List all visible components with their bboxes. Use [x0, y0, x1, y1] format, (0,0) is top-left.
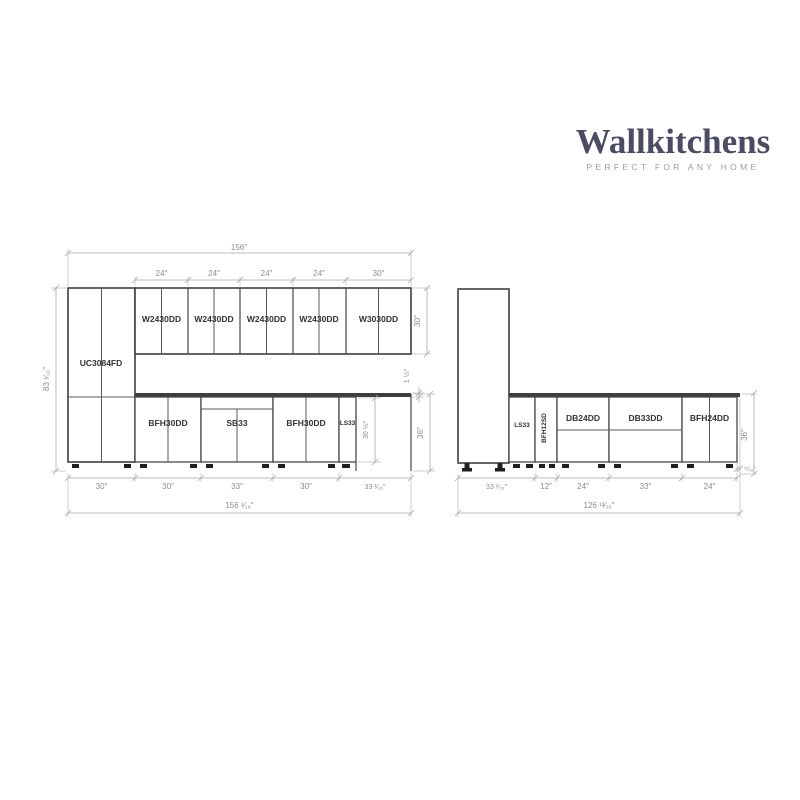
dim-base-height: 30 ½″	[362, 420, 370, 439]
dim-base-width: 33″	[640, 482, 652, 491]
right-elevation: LS33 BFH12SD DB24DD DB33DD BFH24DD 33 ¹⁄…	[455, 289, 757, 517]
tall-cabinet-legs	[462, 463, 505, 472]
label-base-cabinet: DB24DD	[566, 413, 600, 423]
dim-wall-width: 24″	[208, 269, 220, 278]
dim-base-width: 24″	[577, 482, 589, 491]
dim-wall-width: 30″	[373, 269, 385, 278]
label-wall-cabinet: W2430DD	[299, 314, 338, 324]
brand-logo: Wallkitchens PERFECT FOR ANY HOME	[568, 124, 778, 172]
label-base-cabinet: LS33	[340, 420, 356, 427]
dim-counter-height: 36″	[740, 429, 749, 441]
dim-base-width: 33 ¹⁄₁₆″	[486, 484, 507, 491]
cabinet-feet-left	[72, 464, 350, 468]
dim-counter-height: 36″	[416, 427, 425, 439]
label-base-cabinet: SB33	[226, 418, 248, 428]
dim-countertop-thickness: 1 ½″	[403, 368, 411, 383]
dim-wall-width: 24″	[261, 269, 273, 278]
brand-tagline: PERFECT FOR ANY HOME	[568, 162, 778, 172]
dim-wall-height: 30″	[413, 315, 422, 327]
dim-base-width: 30″	[96, 482, 108, 491]
dim-total-height: 83 ¹⁄₁₆″	[42, 367, 51, 391]
label-base-cabinet: BFH12SD	[541, 413, 548, 443]
label-base-cabinet: BFH30DD	[286, 418, 325, 428]
label-wall-cabinet: W2430DD	[142, 314, 181, 324]
left-elevation: UC3084FD W2430DD W2430DD W2430DD W2430DD…	[42, 243, 435, 517]
label-base-cabinet: BFH24DD	[690, 413, 729, 423]
dim-base-width: 12″	[540, 482, 552, 491]
label-wall-cabinet: W3030DD	[359, 314, 398, 324]
dim-wall-width: 24″	[156, 269, 168, 278]
dim-wall-width: 24″	[313, 269, 325, 278]
dim-base-width: 24″	[704, 482, 716, 491]
dim-base-width: 33″	[231, 482, 243, 491]
dim-base-width: 33 ¹⁄₁₆″	[365, 484, 386, 491]
tall-cabinet-uc3084fd	[68, 288, 135, 462]
dim-overall-bottom: 126 ¹³⁄₁₆″	[584, 501, 615, 510]
label-tall-cabinet: UC3084FD	[80, 358, 123, 368]
dim-base-width: 30″	[300, 482, 312, 491]
dim-overall-top: 156″	[231, 243, 247, 252]
dim-overall-bottom: 156 ¹⁄₁₆″	[225, 501, 253, 510]
label-base-cabinet: LS33	[514, 422, 530, 429]
elevation-drawings: UC3084FD W2430DD W2430DD W2430DD W2430DD…	[0, 0, 800, 800]
label-wall-cabinet: W2430DD	[194, 314, 233, 324]
kitchen-plan-page: Wallkitchens PERFECT FOR ANY HOME	[0, 0, 800, 800]
tall-cabinet-corner	[458, 289, 509, 472]
cabinet-feet-right	[513, 464, 733, 468]
dim-base-width: 30″	[162, 482, 174, 491]
label-base-cabinet: DB33DD	[628, 413, 662, 423]
brand-wordmark: Wallkitchens	[568, 124, 778, 159]
dim-counter-overhang: ¹¹⁄₁₆″	[744, 467, 756, 473]
label-base-cabinet: BFH30DD	[148, 418, 187, 428]
label-wall-cabinet: W2430DD	[247, 314, 286, 324]
